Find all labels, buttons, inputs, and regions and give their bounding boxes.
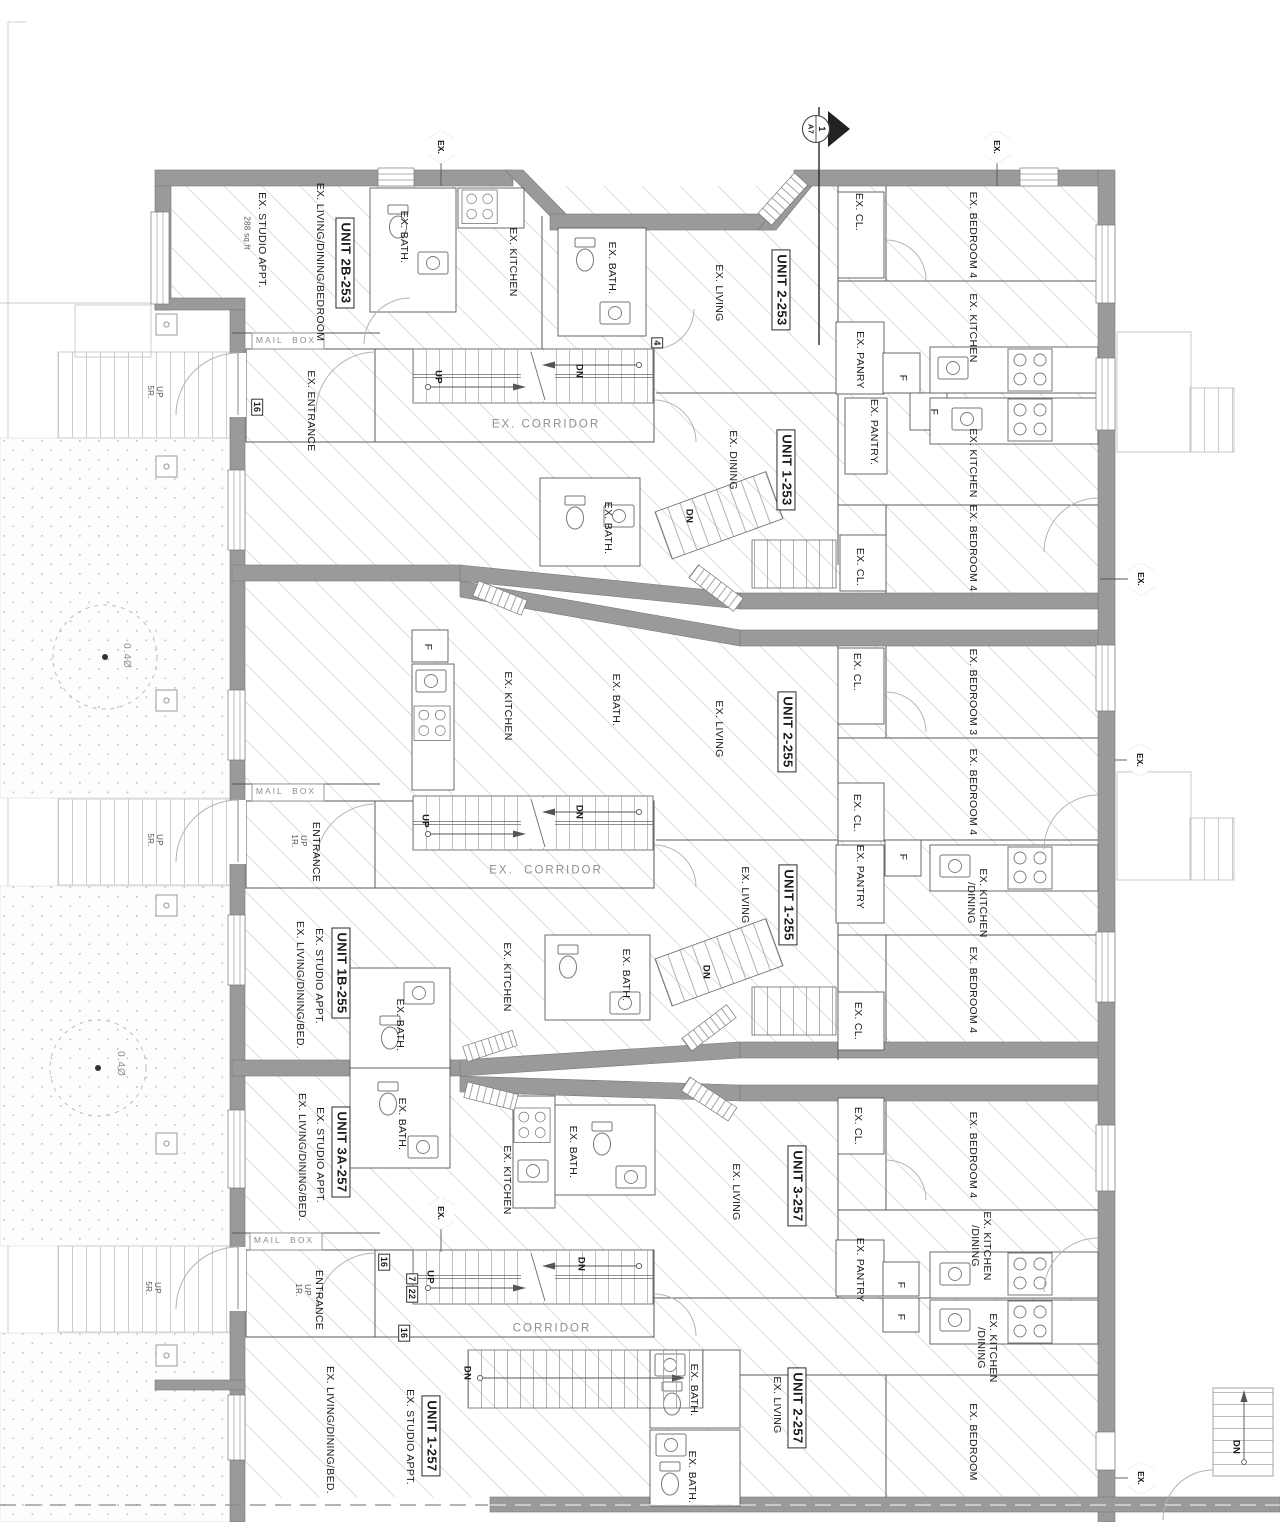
stair-up-255: UP bbox=[419, 814, 430, 828]
room-pantry-2-253: EX. PANRY bbox=[854, 331, 866, 389]
fridge-2-255: F bbox=[422, 644, 434, 651]
section-marker-number: 1 bbox=[817, 126, 827, 131]
room-bath-a-2-257: EX. BATH. bbox=[688, 1364, 700, 1417]
room-pantry-1-255: EX. PANTRY bbox=[854, 845, 866, 909]
unit-3-257: UNIT 3-257 bbox=[788, 1145, 807, 1226]
room-studio-appt-253: EX. STUDIO APPT. bbox=[256, 192, 268, 288]
room-closet-1-253: EX. CL. bbox=[854, 548, 866, 586]
fridge-2-257: F bbox=[895, 1314, 907, 1321]
room-living-1-255: EX. LIVING bbox=[739, 866, 751, 923]
fridge-3-257: F bbox=[895, 1282, 907, 1289]
neighbor-outline bbox=[0, 303, 152, 357]
room-bedroom4-3-257: EX. BEDROOM 4 bbox=[967, 1112, 979, 1199]
area-note-unit2b253: 288 sq.ft bbox=[242, 216, 251, 249]
stair-up-257: UP bbox=[424, 1270, 435, 1284]
room-studio-appt-1b255: EX. STUDIO APPT. bbox=[313, 928, 325, 1024]
mailbox-255: MAIL BOX bbox=[256, 787, 316, 797]
room-living-dining-bed-3a257: EX. LIVING/DINING/BED. bbox=[296, 1093, 308, 1221]
plan-graphics bbox=[0, 0, 1280, 1522]
corridor-255: EX. CORRIDOR bbox=[489, 864, 603, 877]
tag-16-253: 16 bbox=[251, 399, 263, 416]
room-pantry-3-257: EX. PANTRY bbox=[854, 1238, 866, 1302]
room-bath-b-2-257: EX. BATH. bbox=[686, 1451, 698, 1504]
room-studio-appt-3a257: EX. STUDIO APPT. bbox=[314, 1107, 326, 1203]
room-kitchen-2-253: EX. KITCHEN bbox=[967, 293, 979, 362]
room-kitchen-2-255: EX. KITCHEN bbox=[502, 671, 514, 740]
tree-size-2: 0.4Ø bbox=[114, 1051, 126, 1077]
room-bath-2-253: EX. BATH. bbox=[606, 242, 618, 295]
room-living-2-255: EX. LIVING bbox=[713, 700, 725, 757]
unit-2-257: UNIT 2-257 bbox=[788, 1367, 807, 1448]
room-living-dining-bed-1b255: EX. LIVING/DINING/BED. bbox=[294, 921, 306, 1049]
exterior-decks bbox=[1117, 332, 1234, 880]
room-kitchen-dining-1-255: EX. KITCHEN /DINING bbox=[965, 868, 989, 937]
unit-1-255: UNIT 1-255 bbox=[779, 864, 798, 945]
mailbox-257: MAIL BOX bbox=[254, 1236, 314, 1246]
room-kitchen-dining-3-257: EX. KITCHEN /DINING bbox=[969, 1211, 993, 1280]
ex-marker-top-right-label: EX. bbox=[992, 140, 1002, 154]
unit-2b-253: UNIT 2B-253 bbox=[336, 218, 355, 309]
room-bedroom3-2-255: EX. BEDROOM 3 bbox=[967, 649, 979, 736]
stair-dn-1-253: DN bbox=[683, 509, 694, 523]
tag-7-257: 7 bbox=[406, 1273, 418, 1284]
stair-dn-ext: DN bbox=[1230, 1440, 1241, 1454]
stair-dn-253: DN bbox=[573, 364, 584, 378]
room-bath-a-1b255: EX. BATH. bbox=[394, 999, 406, 1052]
room-closet-2-253: EX. CL. bbox=[853, 193, 865, 231]
room-bedroom4-2-255: EX. BEDROOM 4 bbox=[967, 749, 979, 836]
room-closet-a-2-255: EX. CL. bbox=[851, 653, 863, 691]
fridge-1-255: F bbox=[897, 854, 909, 861]
ex-marker-bottom-right-label: EX. bbox=[1136, 1471, 1146, 1485]
ex-marker-right-1-label: EX. bbox=[1136, 572, 1146, 586]
room-closet-b-2-255: EX. CL. bbox=[851, 794, 863, 832]
room-entrance-257: ENTRANCE bbox=[313, 1270, 325, 1330]
tag-4-253: 4 bbox=[651, 337, 663, 348]
yard-dotted-areas bbox=[0, 438, 232, 1522]
corridor-253: EX. CORRIDOR bbox=[492, 418, 600, 431]
room-closet-1-255: EX. CL. bbox=[852, 1002, 864, 1040]
room-entrance-253: EX. ENTRANCE bbox=[305, 370, 317, 451]
room-kitchen-3a257: EX. KITCHEN bbox=[501, 1145, 513, 1214]
room-kitchen-dining-2-257: EX. KITCHEN /DINING bbox=[975, 1313, 999, 1382]
stair-dn-255: DN bbox=[573, 805, 584, 819]
corridor-257: CORRIDOR bbox=[513, 1322, 592, 1335]
room-living-dining-bed-1-257: EX. LIVING/DINING/BED. bbox=[324, 1366, 336, 1494]
room-bath-b-3a257: EX. BATH. bbox=[567, 1126, 579, 1179]
tree-size-1: 0.4Ø bbox=[120, 643, 132, 669]
unit-1b-255: UNIT 1B-255 bbox=[332, 928, 351, 1019]
room-bath-1-253: EX. BATH. bbox=[602, 502, 614, 555]
stair-dn-1-255: DN bbox=[700, 965, 711, 979]
mailbox-253: MAIL BOX bbox=[256, 336, 316, 346]
fridge-1-253: F bbox=[928, 409, 940, 416]
room-entrance-255: ENTRANCE bbox=[310, 822, 322, 882]
floor-plan-canvas: 1 A7 288 sq.ftEX. STUDIO APPT.EX. LIVING… bbox=[0, 0, 1280, 1522]
tag-16-257-b: 16 bbox=[398, 1325, 410, 1342]
stair-up-253: UP bbox=[432, 370, 443, 384]
room-bath-2-255: EX. BATH. bbox=[610, 674, 622, 727]
tag-22-257: 22 bbox=[406, 1286, 418, 1303]
note-up-5r-3: UP 5R. bbox=[144, 1281, 162, 1294]
fridge-2-253: F bbox=[897, 375, 909, 382]
room-kitchen-2b253: EX. KITCHEN bbox=[507, 227, 519, 296]
room-bath-2b253: EX. BATH. bbox=[398, 211, 410, 264]
stair-dn-lower-257: DN bbox=[461, 1366, 472, 1380]
room-studio-appt-1-257: EX. STUDIO APPT. bbox=[404, 1389, 416, 1485]
section-marker-sheet: A7 bbox=[806, 124, 815, 134]
ex-marker-mid-bottom-label: EX. bbox=[436, 1206, 446, 1220]
room-bedroom4-1-253: EX. BEDROOM 4 bbox=[967, 505, 979, 592]
room-bedroom-2-257: EX. BEDROOM bbox=[967, 1403, 979, 1480]
room-living-dining-bedroom-253: EX. LIVING/DINING/BEDROOM bbox=[314, 183, 326, 342]
room-dining-1-253: EX. DINING bbox=[727, 430, 739, 490]
note-up-1r-255: UP 1R. bbox=[290, 834, 308, 847]
stair-dn-257: DN bbox=[575, 1257, 586, 1271]
unit-3a-257: UNIT 3A-257 bbox=[332, 1107, 351, 1198]
room-bath-a-3a257: EX. BATH. bbox=[396, 1098, 408, 1151]
room-kitchen-1-253: EX. KITCHEN bbox=[967, 428, 979, 497]
room-living-3-257: EX. LIVING bbox=[730, 1163, 742, 1220]
unit-1-257: UNIT 1-257 bbox=[422, 1395, 441, 1476]
room-bedroom4-1-255: EX. BEDROOM 4 bbox=[967, 947, 979, 1034]
ex-marker-top-left-label: EX. bbox=[436, 140, 446, 154]
unit-2-255: UNIT 2-255 bbox=[778, 691, 797, 772]
note-up-5r-2: UP 5R. bbox=[146, 833, 164, 846]
room-bedroom4-2-253: EX. BEDROOM 4 bbox=[967, 192, 979, 279]
room-kitchen-1b255: EX. KITCHEN bbox=[501, 942, 513, 1011]
room-living-2-257: EX. LIVING bbox=[771, 1376, 783, 1433]
unit-2-253: UNIT 2-253 bbox=[772, 249, 791, 330]
note-up-1r-257: UP 1R. bbox=[294, 1283, 312, 1296]
unit-1-253: UNIT 1-253 bbox=[777, 429, 796, 510]
ex-marker-right-2-label: EX. bbox=[1135, 753, 1145, 767]
tag-16-257-a: 16 bbox=[378, 1254, 390, 1271]
note-up-5r-1: UP 5R. bbox=[146, 385, 164, 398]
room-living-2-253: EX. LIVING bbox=[713, 264, 725, 321]
room-closet-3-257: EX. CL. bbox=[852, 1107, 864, 1145]
room-pantry-1-253: EX. PANTRY. bbox=[868, 399, 880, 465]
room-bath-b-1b255: EX. BATH. bbox=[620, 949, 632, 1002]
